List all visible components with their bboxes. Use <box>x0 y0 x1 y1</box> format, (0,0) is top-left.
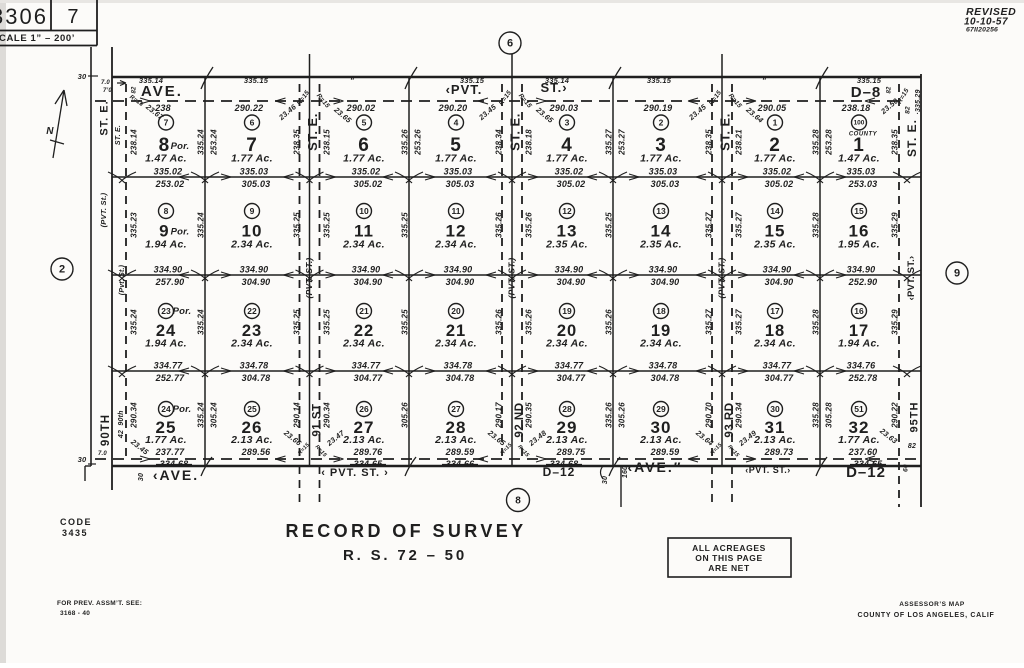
svg-text:290.19: 290.19 <box>643 103 673 113</box>
svg-text:335.26: 335.26 <box>400 129 409 155</box>
svg-text:335.02: 335.02 <box>555 167 584 177</box>
svg-text:2.35 Ac.: 2.35 Ac. <box>545 239 588 251</box>
svg-text:D–12: D–12 <box>543 465 576 479</box>
svg-text:28: 28 <box>562 404 572 414</box>
svg-text:253.03: 253.03 <box>848 179 878 189</box>
svg-text:82: 82 <box>905 106 912 114</box>
svg-text:335.02: 335.02 <box>154 167 183 177</box>
svg-text:238.35: 238.35 <box>292 129 301 156</box>
svg-text:335.29: 335.29 <box>890 309 899 335</box>
svg-text:335.15: 335.15 <box>647 76 672 85</box>
svg-text:2.13 Ac.: 2.13 Ac. <box>434 434 477 446</box>
svg-text:334.90: 334.90 <box>352 265 381 275</box>
svg-text:334.78: 334.78 <box>649 361 678 371</box>
svg-text:‹PVT.: ‹PVT. <box>446 82 483 97</box>
svg-text:2.34 Ac.: 2.34 Ac. <box>639 338 682 350</box>
svg-text:8: 8 <box>515 495 521 506</box>
svg-text:Por.: Por. <box>173 306 192 317</box>
svg-text:95TH: 95TH <box>909 402 921 433</box>
svg-text:3306: 3306 <box>0 4 48 29</box>
svg-text:304.90: 304.90 <box>242 277 271 287</box>
svg-text:″: ″ <box>350 76 354 85</box>
svg-text:335.26: 335.26 <box>524 212 533 238</box>
svg-text:160: 160 <box>622 466 629 478</box>
svg-text:335.26: 335.26 <box>604 309 613 335</box>
svg-text:13: 13 <box>656 206 666 216</box>
svg-text:14: 14 <box>770 206 780 216</box>
svg-text:23: 23 <box>161 306 171 316</box>
svg-text:335.25: 335.25 <box>322 212 331 238</box>
svg-text:16: 16 <box>854 306 864 316</box>
svg-text:335.25: 335.25 <box>322 309 331 335</box>
svg-text:1.94 Ac.: 1.94 Ac. <box>838 338 880 350</box>
svg-text:335.28: 335.28 <box>811 309 820 335</box>
svg-text:18: 18 <box>656 306 666 316</box>
svg-text:7: 7 <box>164 117 169 127</box>
svg-text:334.90: 334.90 <box>444 265 473 275</box>
svg-text:290.20: 290.20 <box>438 103 468 113</box>
svg-text:305.26: 305.26 <box>400 402 409 428</box>
svg-text:ON THIS PAGE: ON THIS PAGE <box>695 553 763 563</box>
svg-text:R. S. 72 – 50: R. S. 72 – 50 <box>343 547 467 564</box>
svg-text:2.13 Ac.: 2.13 Ac. <box>639 434 682 446</box>
svg-text:290.34: 290.34 <box>322 402 331 429</box>
svg-text:238.35: 238.35 <box>704 129 713 156</box>
svg-text:335.28: 335.28 <box>811 129 820 155</box>
svg-text:335.24: 335.24 <box>196 129 205 155</box>
svg-text:1: 1 <box>773 117 778 127</box>
svg-text:335.26: 335.26 <box>524 309 533 335</box>
svg-text:1.77 Ac.: 1.77 Ac. <box>343 153 385 165</box>
svg-text:1.77 Ac.: 1.77 Ac. <box>231 153 273 165</box>
svg-text:335.27: 335.27 <box>604 129 613 155</box>
svg-text:93 RD: 93 RD <box>724 402 736 437</box>
svg-text:304.90: 304.90 <box>354 277 383 287</box>
svg-text:305.03: 305.03 <box>242 179 271 189</box>
svg-text:1.77 Ac.: 1.77 Ac. <box>546 153 588 165</box>
svg-text:253.26: 253.26 <box>413 129 422 156</box>
svg-text:238.14: 238.14 <box>129 129 138 156</box>
svg-text:29: 29 <box>656 404 666 414</box>
svg-text:334.90: 334.90 <box>154 265 183 275</box>
svg-text:335.25: 335.25 <box>400 212 409 238</box>
svg-text:305.24: 305.24 <box>209 402 218 428</box>
svg-text:ARE NET: ARE NET <box>708 563 750 573</box>
svg-text:290.70: 290.70 <box>704 402 713 429</box>
svg-text:305.02: 305.02 <box>765 179 794 189</box>
svg-text:334.90: 334.90 <box>649 265 678 275</box>
svg-text:2: 2 <box>59 264 65 276</box>
svg-text:334.90: 334.90 <box>240 265 269 275</box>
svg-text:304.78: 304.78 <box>242 373 271 383</box>
svg-text:27: 27 <box>451 404 461 414</box>
svg-text:335.26: 335.26 <box>494 309 503 335</box>
svg-text:82: 82 <box>132 86 138 94</box>
svg-text:60: 60 <box>903 464 910 472</box>
svg-text:82: 82 <box>887 86 893 94</box>
svg-text:335.15: 335.15 <box>244 76 269 85</box>
svg-text:3435: 3435 <box>62 528 88 538</box>
svg-text:1.77 Ac.: 1.77 Ac. <box>640 153 682 165</box>
svg-text:334.77: 334.77 <box>352 361 382 371</box>
svg-text:238.18: 238.18 <box>524 129 533 156</box>
svg-text:334.90: 334.90 <box>763 265 792 275</box>
svg-text:51: 51 <box>854 404 864 414</box>
svg-text:CALE 1” – 200’: CALE 1” – 200’ <box>0 33 75 44</box>
svg-text:334.77: 334.77 <box>555 361 585 371</box>
svg-text:4: 4 <box>454 117 459 127</box>
svg-text:100: 100 <box>854 120 865 127</box>
svg-text:335.24: 335.24 <box>196 309 205 335</box>
svg-text:ST. E.: ST. E. <box>99 100 111 135</box>
svg-text:AVE.: AVE. <box>141 83 183 100</box>
svg-text:D–8: D–8 <box>851 84 882 101</box>
svg-text:289.75: 289.75 <box>556 447 587 457</box>
svg-text:7’0: 7’0 <box>103 88 112 94</box>
svg-text:1.77 Ac.: 1.77 Ac. <box>435 153 477 165</box>
svg-text:2.13 Ac.: 2.13 Ac. <box>230 434 273 446</box>
svg-text:22: 22 <box>247 306 257 316</box>
svg-text:1.94 Ac.: 1.94 Ac. <box>145 338 187 350</box>
svg-text:21: 21 <box>359 306 369 316</box>
svg-text:42: 42 <box>118 430 125 439</box>
svg-text:252.77: 252.77 <box>155 373 186 383</box>
svg-text:8: 8 <box>164 206 169 216</box>
svg-text:335.24: 335.24 <box>196 212 205 238</box>
svg-text:6: 6 <box>507 38 513 50</box>
svg-text:1.77 Ac.: 1.77 Ac. <box>754 153 796 165</box>
svg-text:304.78: 304.78 <box>446 373 475 383</box>
svg-text:237.77: 237.77 <box>155 447 186 457</box>
svg-text:290.14: 290.14 <box>292 402 301 429</box>
svg-text:335.28: 335.28 <box>811 212 820 238</box>
svg-text:335.03: 335.03 <box>649 167 678 177</box>
svg-text:335.25: 335.25 <box>604 212 613 238</box>
svg-text:N: N <box>46 126 54 137</box>
svg-text:3: 3 <box>565 117 570 127</box>
svg-text:335.02: 335.02 <box>763 167 792 177</box>
svg-text:10: 10 <box>359 206 369 216</box>
svg-text:237.60: 237.60 <box>848 447 878 457</box>
svg-text:290.17: 290.17 <box>494 402 503 429</box>
svg-text:2.34 Ac.: 2.34 Ac. <box>230 338 273 350</box>
svg-text:2.34 Ac.: 2.34 Ac. <box>434 338 477 350</box>
svg-text:335.25: 335.25 <box>400 309 409 335</box>
svg-text:1.77 Ac.: 1.77 Ac. <box>838 434 880 446</box>
svg-text:252.90: 252.90 <box>848 277 878 287</box>
svg-text:2.13 Ac.: 2.13 Ac. <box>342 434 385 446</box>
svg-text:ST.›: ST.› <box>540 80 567 95</box>
svg-text:20: 20 <box>451 306 461 316</box>
svg-text:2.34 Ac.: 2.34 Ac. <box>342 239 385 251</box>
svg-text:335.23: 335.23 <box>129 212 138 238</box>
svg-text:30: 30 <box>78 72 87 81</box>
svg-text:304.77: 304.77 <box>354 373 384 383</box>
svg-text:30: 30 <box>602 476 609 484</box>
svg-text:335.25: 335.25 <box>292 212 301 238</box>
svg-text:305.02: 305.02 <box>557 179 586 189</box>
svg-text:1.94 Ac.: 1.94 Ac. <box>145 239 187 251</box>
svg-text:CODE: CODE <box>60 517 92 527</box>
svg-text:335.27: 335.27 <box>704 309 713 335</box>
svg-text:335.29: 335.29 <box>890 212 899 238</box>
svg-text:30: 30 <box>78 455 87 464</box>
svg-text:ST. E.: ST. E. <box>507 113 522 151</box>
svg-text:30: 30 <box>138 473 145 481</box>
svg-text:253.28: 253.28 <box>824 129 833 156</box>
svg-text:305.28: 305.28 <box>824 402 833 428</box>
svg-text:Por.: Por. <box>171 227 190 238</box>
svg-text:9: 9 <box>954 268 960 280</box>
svg-text:92 ND: 92 ND <box>514 402 526 437</box>
svg-text:289.76: 289.76 <box>353 447 384 457</box>
svg-text:(PVT. St.): (PVT. St.) <box>99 192 108 227</box>
svg-text:ASSESSOR’S MAP: ASSESSOR’S MAP <box>899 601 965 608</box>
svg-text:2.34 Ac.: 2.34 Ac. <box>230 239 273 251</box>
svg-text:304.77: 304.77 <box>557 373 587 383</box>
svg-text:D–12: D–12 <box>846 464 886 481</box>
svg-text:335.26: 335.26 <box>494 212 503 238</box>
svg-text:‹AVE.: ‹AVE. <box>153 467 199 483</box>
svg-text:12: 12 <box>562 206 572 216</box>
svg-text:335.24: 335.24 <box>196 402 205 428</box>
svg-text:335.03: 335.03 <box>240 167 269 177</box>
svg-text:‹PVT. ST.›: ‹PVT. ST.› <box>745 465 791 475</box>
svg-text:289.73: 289.73 <box>764 447 794 457</box>
svg-text:7.0: 7.0 <box>101 80 110 86</box>
svg-text:17: 17 <box>770 306 780 316</box>
svg-text:334.76: 334.76 <box>847 361 877 371</box>
svg-text:334.77: 334.77 <box>154 361 184 371</box>
svg-text:334.77: 334.77 <box>763 361 793 371</box>
svg-text:‹AVE.″: ‹AVE.″ <box>627 459 682 475</box>
svg-text:334.78: 334.78 <box>240 361 269 371</box>
svg-text:305.03: 305.03 <box>446 179 475 189</box>
svg-text:253.02: 253.02 <box>155 179 185 189</box>
svg-text:2.13 Ac.: 2.13 Ac. <box>545 434 588 446</box>
svg-text:289.59: 289.59 <box>445 447 475 457</box>
svg-text:305.02: 305.02 <box>354 179 383 189</box>
svg-text:5: 5 <box>362 117 367 127</box>
svg-text:290.22: 290.22 <box>890 402 899 429</box>
svg-text:304.78: 304.78 <box>651 373 680 383</box>
svg-text:290.02: 290.02 <box>346 103 376 113</box>
svg-text:7.0: 7.0 <box>98 451 107 457</box>
svg-text:304.90: 304.90 <box>765 277 794 287</box>
svg-text:30: 30 <box>770 404 780 414</box>
svg-text:ST. E.: ST. E. <box>905 119 919 157</box>
svg-text:FOR PREV. ASSM’T. SEE:: FOR PREV. ASSM’T. SEE: <box>57 600 142 607</box>
svg-text:67II20256: 67II20256 <box>966 27 998 34</box>
svg-text:305.03: 305.03 <box>651 179 680 189</box>
svg-text:335.02: 335.02 <box>352 167 381 177</box>
svg-text:335.03: 335.03 <box>444 167 473 177</box>
svg-text:289.56: 289.56 <box>241 447 272 457</box>
svg-text:19: 19 <box>562 306 572 316</box>
svg-text:304.77: 304.77 <box>765 373 795 383</box>
svg-text:334.78: 334.78 <box>444 361 473 371</box>
svg-text:25: 25 <box>247 404 257 414</box>
svg-text:1.77 Ac.: 1.77 Ac. <box>145 434 187 446</box>
svg-text:335.24: 335.24 <box>129 309 138 335</box>
svg-text:257.90: 257.90 <box>155 277 185 287</box>
svg-text:2.13 Ac.: 2.13 Ac. <box>753 434 796 446</box>
svg-text:6: 6 <box>250 117 255 127</box>
svg-text:ALL ACREAGES: ALL ACREAGES <box>692 543 766 553</box>
svg-text:1.47 Ac.: 1.47 Ac. <box>145 153 187 165</box>
svg-text:Por.: Por. <box>171 141 190 152</box>
svg-text:335.25: 335.25 <box>292 309 301 335</box>
svg-text:RECORD OF SURVEY: RECORD OF SURVEY <box>285 521 526 541</box>
svg-text:2.34 Ac.: 2.34 Ac. <box>434 239 477 251</box>
svg-text:7: 7 <box>67 6 78 28</box>
svg-text:ST. E.: ST. E. <box>305 113 320 151</box>
svg-text:289.59: 289.59 <box>650 447 680 457</box>
svg-text:304.90: 304.90 <box>651 277 680 287</box>
svg-text:·335.29: ·335.29 <box>915 89 922 114</box>
svg-text:252.78: 252.78 <box>848 373 878 383</box>
svg-text:304.90: 304.90 <box>446 277 475 287</box>
svg-text:290.34: 290.34 <box>129 402 138 429</box>
svg-text:238.15: 238.15 <box>322 129 331 156</box>
svg-text:2.35 Ac.: 2.35 Ac. <box>639 239 682 251</box>
svg-text:1.95 Ac.: 1.95 Ac. <box>838 239 880 251</box>
svg-text:90th: 90th <box>118 410 125 425</box>
svg-text:11: 11 <box>452 206 461 216</box>
svg-text:335.27: 335.27 <box>734 212 743 238</box>
svg-text:″: ″ <box>762 76 766 85</box>
svg-text:1.47 Ac.: 1.47 Ac. <box>838 153 880 165</box>
svg-text:238.35: 238.35 <box>890 129 899 156</box>
svg-text:238.18: 238.18 <box>841 103 871 113</box>
svg-text:290.03: 290.03 <box>549 103 579 113</box>
svg-text:335.27: 335.27 <box>734 309 743 335</box>
svg-text:238.34: 238.34 <box>494 129 503 156</box>
svg-text:Por.: Por. <box>173 404 192 415</box>
svg-text:‹ PVT. ST. ›: ‹ PVT. ST. › <box>321 467 389 479</box>
svg-text:253.24: 253.24 <box>209 129 218 156</box>
svg-text:15: 15 <box>854 206 864 216</box>
svg-text:3168 - 40: 3168 - 40 <box>60 610 90 617</box>
svg-text:91 ST: 91 ST <box>311 403 323 436</box>
svg-text:2.34 Ac.: 2.34 Ac. <box>342 338 385 350</box>
svg-text:ST. E.: ST. E. <box>115 125 122 145</box>
svg-text:335.27: 335.27 <box>704 212 713 238</box>
svg-text:305.26: 305.26 <box>617 402 626 428</box>
svg-text:26: 26 <box>359 404 369 414</box>
svg-text:253.27: 253.27 <box>617 129 626 156</box>
svg-text:9: 9 <box>250 206 255 216</box>
svg-text:304.90: 304.90 <box>557 277 586 287</box>
svg-text:24: 24 <box>161 404 171 414</box>
svg-text:334.90: 334.90 <box>847 265 876 275</box>
svg-text:335.26: 335.26 <box>604 402 613 428</box>
svg-text:238.21: 238.21 <box>734 129 743 156</box>
svg-text:334.90: 334.90 <box>555 265 584 275</box>
svg-text:335.03: 335.03 <box>847 167 876 177</box>
svg-text:335.28: 335.28 <box>811 402 820 428</box>
svg-text:2: 2 <box>659 117 664 127</box>
svg-text:COUNTY OF LOS ANGELES, CAL: COUNTY OF LOS ANGELES, CALIF <box>857 612 994 619</box>
svg-text:90TH: 90TH <box>100 414 112 446</box>
svg-text:290.05: 290.05 <box>757 103 788 113</box>
svg-text:82: 82 <box>908 443 916 450</box>
svg-text:2.34 Ac.: 2.34 Ac. <box>753 338 796 350</box>
svg-text:2.34 Ac.: 2.34 Ac. <box>545 338 588 350</box>
svg-text:290.22: 290.22 <box>234 103 264 113</box>
svg-text:ST. E.: ST. E. <box>717 113 732 151</box>
svg-text:2.35 Ac.: 2.35 Ac. <box>753 239 796 251</box>
